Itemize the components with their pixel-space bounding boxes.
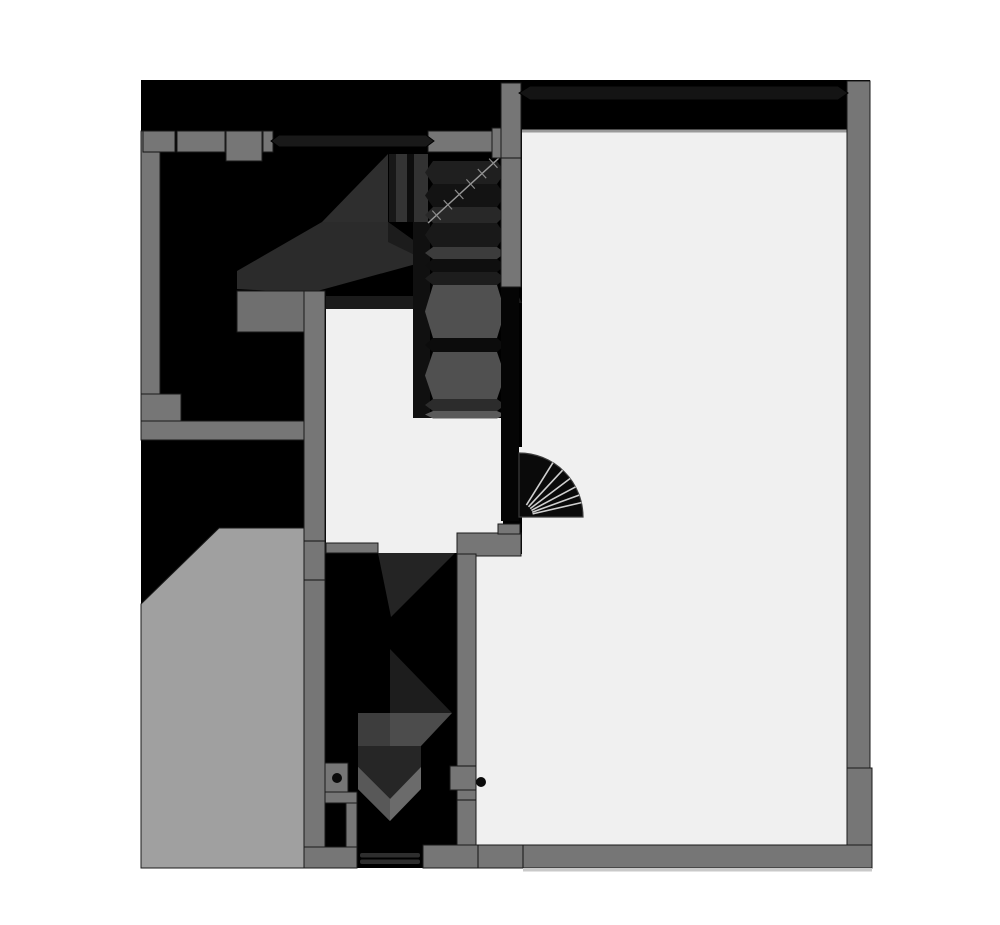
floor-dot-entry [332,773,342,783]
wall-divider [141,421,325,440]
wall-bottom [423,845,872,868]
wall-door-stub [498,524,520,534]
entry-arrow-left-quad [358,713,390,746]
floor-plan-canvas [0,0,1000,925]
stair-tread-2 [425,184,505,207]
stair-shadow-strip-1 [389,154,396,222]
window-top-left [271,135,434,147]
wall-left [141,131,160,394]
stair-tread-10 [425,352,505,399]
floor-plan-page [0,0,1000,925]
door-leaf-strip [501,287,519,521]
stair-tread-7 [425,272,505,285]
under-wall-light-strip [523,868,872,872]
window-top-right [519,86,848,100]
wall-top-4 [428,131,492,152]
wall-hallway-bottom-left [326,543,378,553]
wall-room-left [457,554,476,845]
wall-entry-step-v [346,803,357,847]
hallway-floor-right [457,418,503,533]
wall-top-1 [143,131,175,152]
entry-threshold-line-1 [360,853,420,858]
hallway-opening-floor [378,543,457,553]
wall-entry-bottom [304,847,357,868]
wall-top-2 [177,131,225,152]
stair-tread-5 [425,247,505,259]
stair-tread-4 [425,223,505,247]
stair-tread-8 [425,285,505,338]
stair-tread-11 [425,399,505,411]
hallway-floor-lower [413,418,457,543]
stair-tread-6 [425,259,505,272]
stair-shadow-strip-2 [396,154,407,222]
hallway-top-shadow [326,296,413,309]
floor-dot-room [476,777,486,787]
wall-hallway-bottom-right [457,533,521,556]
wall-entry-nook [450,766,476,790]
stair-tread-12 [425,411,505,419]
wall-entry-step-h [325,792,357,803]
hallway-floor-upper [326,309,413,543]
stair-shadow-strip-4 [414,154,428,222]
wall-stair-side [501,83,521,287]
stair-tread-9 [425,338,505,352]
living-room-top-edge [522,130,847,133]
wall-top-pillar [226,131,262,161]
stair-shadow-strip-3 [407,154,414,222]
entry-threshold-line-2 [360,860,420,865]
wall-right [847,81,870,768]
